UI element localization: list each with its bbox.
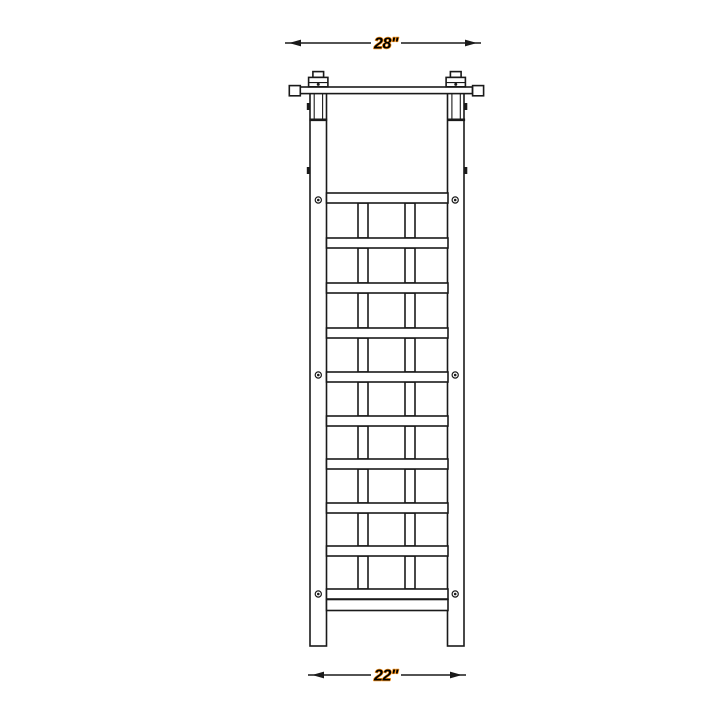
lattice-rail [327,193,449,203]
lattice-slat [405,203,415,238]
lattice-rail [327,416,449,426]
bottom-dimension-arrow-right [450,672,462,679]
crossbar-endcap-left [289,86,300,96]
post-right-screw-bump-icon [464,103,467,110]
bottom-dimension-label: 22" [373,668,399,685]
finial-right-knob [450,72,461,78]
lattice-slat [358,469,368,503]
lattice-rail [327,546,449,556]
screw-icon [454,374,457,377]
lattice-rail [327,503,449,513]
lattice-rail [327,589,449,599]
top-dimension: 28" [285,36,481,53]
screw-icon [454,593,457,596]
finial-left [309,72,328,87]
screw-icon [317,593,320,596]
post-left [307,87,327,647]
post-left-screw-bump-icon [307,167,310,174]
finial-left-bolt-icon [317,83,320,86]
lattice-slat [405,338,415,372]
screw-icon [317,374,320,377]
drawing-canvas: 28" [0,0,720,720]
crossbar-endcap-right [473,86,484,96]
trellis [289,72,483,646]
lattice-slat [358,513,368,546]
crossbar-body [300,87,473,94]
lattice-slat [358,426,368,459]
lattice-slat [358,338,368,372]
post-right-body [448,87,465,647]
top-dimension-arrow-right [465,40,477,47]
lattice-slat [405,556,415,589]
lattice-rail [327,238,449,248]
top-dimension-label: 28" [373,36,399,53]
bottom-dimension-arrow-left [312,672,324,679]
lattice-slat [358,293,368,328]
lattice-slat [405,426,415,459]
top-dimension-arrow-left [289,40,301,47]
lattice-slat [358,382,368,416]
bottom-stretcher [327,600,449,611]
lattice-rail [327,328,449,338]
lattice-slat [405,293,415,328]
finial-left-knob [313,72,324,78]
bottom-dimension: 22" [308,668,466,685]
finial-right [446,72,465,87]
lattice-rail [327,459,449,469]
post-left-screw-bump-icon [307,103,310,110]
lattice-slat [358,556,368,589]
lattice-slat [358,203,368,238]
lattice [315,193,458,611]
lattice-slat [405,248,415,283]
screw-icon [454,199,457,202]
lattice-rail [327,372,449,382]
trellis-diagram: 28" [0,0,720,720]
post-right [447,87,467,647]
post-right-screw-bump-icon [464,167,467,174]
lattice-slat [405,469,415,503]
finial-right-bolt-icon [454,83,457,86]
lattice-slat [405,513,415,546]
lattice-rail [327,283,449,293]
lattice-slat [358,248,368,283]
lattice-slat [405,382,415,416]
post-left-body [310,87,327,647]
screw-icon [317,199,320,202]
